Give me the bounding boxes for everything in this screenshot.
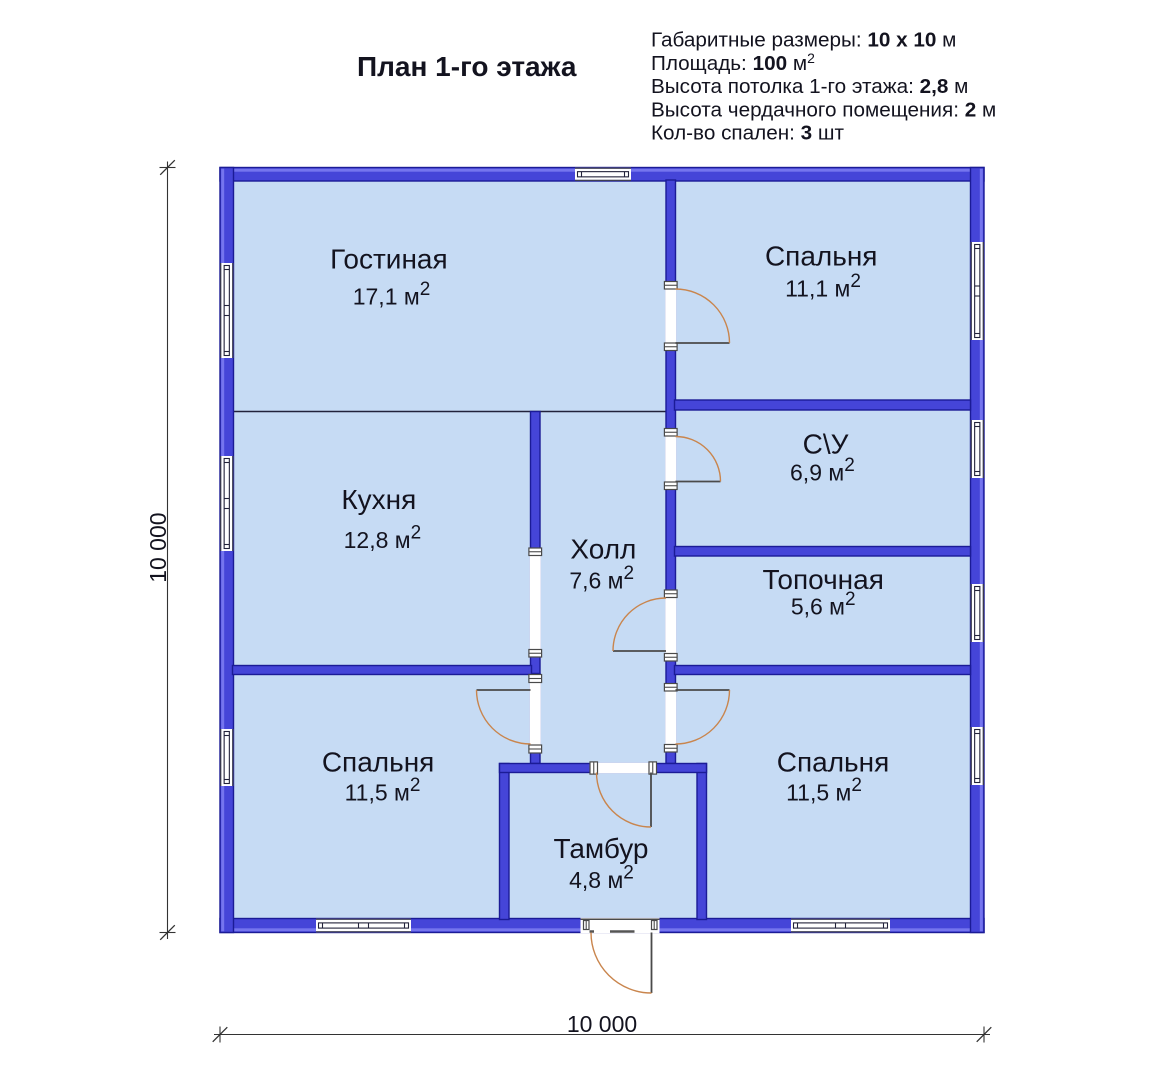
svg-text:10 000: 10 000: [567, 1011, 637, 1037]
svg-text:12,8 м2: 12,8 м2: [344, 523, 422, 554]
svg-text:Высота чердачного помещения: 2: Высота чердачного помещения: 2 м: [651, 98, 996, 121]
svg-text:Спальня: Спальня: [765, 241, 878, 272]
svg-text:17,1 м2: 17,1 м2: [353, 279, 431, 310]
svg-text:Холл: Холл: [570, 534, 636, 565]
svg-text:Площадь: 100 м2: Площадь: 100 м2: [651, 50, 815, 75]
svg-text:Высота потолка 1-го этажа: 2,8: Высота потолка 1-го этажа: 2,8 м: [651, 75, 968, 98]
svg-text:Тамбур: Тамбур: [553, 833, 648, 864]
svg-text:Топочная: Топочная: [762, 564, 883, 595]
svg-text:Кол-во спален: 3 шт: Кол-во спален: 3 шт: [651, 122, 844, 145]
svg-text:11,5 м2: 11,5 м2: [345, 775, 421, 806]
svg-text:План 1-го этажа: План 1-го этажа: [357, 51, 577, 82]
svg-text:11,5 м2: 11,5 м2: [786, 775, 862, 806]
svg-text:11,1 м2: 11,1 м2: [785, 271, 861, 302]
svg-text:Спальня: Спальня: [322, 747, 435, 778]
svg-text:10 000: 10 000: [145, 512, 171, 582]
svg-text:Спальня: Спальня: [777, 747, 890, 778]
svg-text:Кухня: Кухня: [341, 484, 416, 515]
svg-text:Гостиная: Гостиная: [330, 244, 448, 275]
svg-text:С\У: С\У: [803, 428, 849, 459]
svg-text:Габаритные размеры: 10 х 10 м: Габаритные размеры: 10 х 10 м: [651, 29, 956, 52]
